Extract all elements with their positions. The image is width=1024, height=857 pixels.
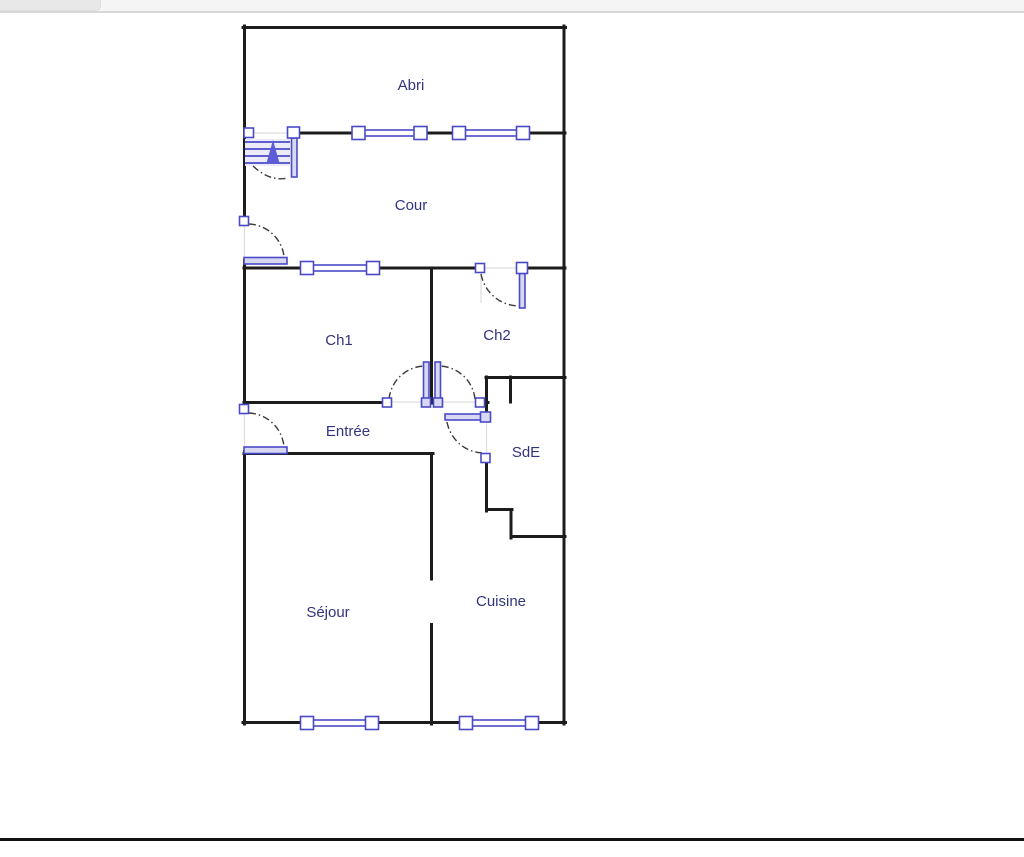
window-sejour: [301, 717, 379, 730]
floorplan-area: Abri Cour Ch1 Ch2 Entrée SdE Séjour Cuis…: [0, 0, 1024, 852]
window-cuisine: [460, 717, 539, 730]
room-label-ch1: Ch1: [325, 332, 353, 349]
window-abri-right: [453, 127, 530, 140]
door-cour: [240, 217, 288, 265]
window-cour: [301, 262, 380, 275]
stairs-icon: [244, 127, 300, 179]
door-ch2: [476, 263, 528, 309]
room-label-cour: Cour: [395, 197, 428, 214]
door-double: [383, 362, 485, 407]
room-label-entree: Entrée: [326, 423, 370, 440]
door-sde: [445, 412, 491, 463]
room-label-sejour: Séjour: [306, 604, 349, 621]
bottom-divider: [0, 838, 1024, 841]
room-label-cuisine: Cuisine: [476, 593, 526, 610]
room-label-abri: Abri: [398, 77, 425, 94]
room-label-ch2: Ch2: [483, 327, 511, 344]
window-abri-left: [352, 127, 427, 140]
floorplan-canvas: Abri Cour Ch1 Ch2 Entrée SdE Séjour Cuis…: [0, 0, 1024, 852]
door-entree: [240, 405, 288, 454]
interior-walls: [244, 133, 565, 724]
room-label-sde: SdE: [512, 444, 540, 461]
